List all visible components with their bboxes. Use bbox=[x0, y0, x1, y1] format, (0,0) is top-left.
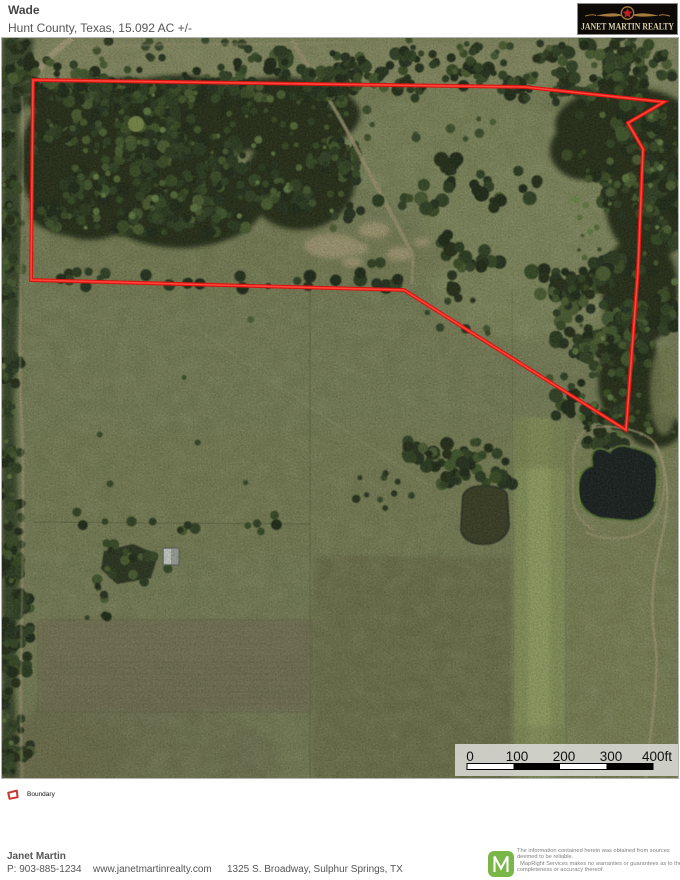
svg-text:400ft: 400ft bbox=[642, 749, 672, 764]
svg-text:0: 0 bbox=[466, 749, 474, 764]
svg-text:300: 300 bbox=[600, 749, 623, 764]
svg-text:JANET MARTIN REALTY: JANET MARTIN REALTY bbox=[581, 22, 674, 33]
svg-text:100: 100 bbox=[506, 749, 529, 764]
svg-text:200: 200 bbox=[553, 749, 576, 764]
